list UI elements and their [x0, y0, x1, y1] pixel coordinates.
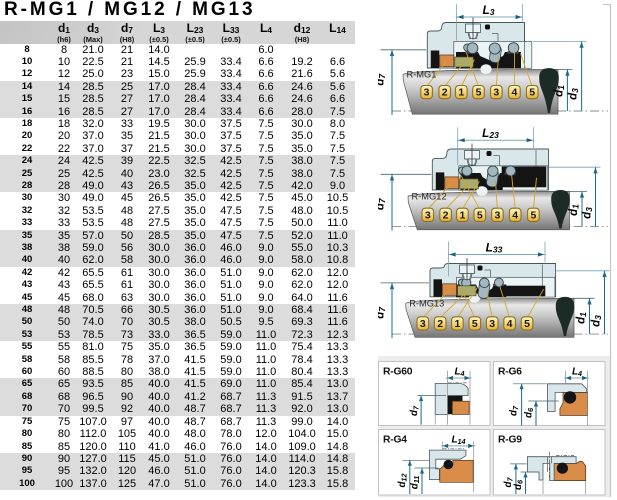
- svg-text:3: 3: [494, 209, 500, 221]
- svg-text:R-MG1: R-MG1: [407, 70, 437, 80]
- svg-text:R-G60: R-G60: [383, 367, 413, 378]
- svg-text:1: 1: [459, 209, 465, 221]
- svg-text:4: 4: [507, 318, 513, 330]
- svg-text:L33: L33: [486, 240, 503, 254]
- svg-text:d7: d7: [409, 405, 421, 416]
- svg-text:2: 2: [442, 87, 448, 99]
- svg-text:d3: d3: [581, 207, 594, 219]
- svg-text:3: 3: [420, 318, 426, 330]
- svg-text:d1: d1: [575, 312, 588, 324]
- svg-text:d1: d1: [568, 204, 581, 216]
- svg-text:R-MG12: R-MG12: [412, 192, 447, 202]
- svg-text:d1: d1: [553, 85, 566, 97]
- svg-text:L14: L14: [451, 435, 465, 446]
- svg-text:3: 3: [424, 87, 430, 99]
- svg-text:d3: d3: [568, 88, 581, 100]
- svg-text:1: 1: [454, 318, 460, 330]
- svg-text:2: 2: [437, 318, 443, 330]
- svg-text:d11: d11: [409, 476, 421, 490]
- svg-text:5: 5: [529, 87, 535, 99]
- svg-text:d7: d7: [378, 306, 387, 319]
- svg-text:5: 5: [530, 209, 536, 221]
- svg-text:5: 5: [476, 87, 482, 99]
- svg-text:4: 4: [511, 87, 517, 99]
- svg-text:5: 5: [524, 318, 530, 330]
- svg-text:d7: d7: [378, 197, 387, 210]
- svg-text:L4: L4: [454, 367, 464, 378]
- svg-text:R-MG13: R-MG13: [409, 299, 444, 309]
- svg-text:d7: d7: [378, 73, 387, 86]
- svg-text:5: 5: [472, 318, 478, 330]
- svg-text:1: 1: [458, 87, 464, 99]
- svg-text:2: 2: [443, 209, 449, 221]
- svg-text:4: 4: [512, 209, 518, 221]
- svg-text:3: 3: [425, 209, 431, 221]
- svg-text:L23: L23: [482, 126, 499, 140]
- svg-text:d7: d7: [509, 405, 521, 416]
- svg-text:L3: L3: [483, 3, 495, 17]
- svg-text:3: 3: [489, 318, 495, 330]
- svg-text:L4: L4: [572, 367, 582, 378]
- svg-text:d6: d6: [513, 479, 525, 490]
- svg-text:3: 3: [493, 87, 499, 99]
- svg-text:d12: d12: [397, 473, 409, 487]
- svg-text:R-G9: R-G9: [498, 435, 522, 446]
- svg-text:d6: d6: [523, 407, 535, 418]
- svg-text:d3: d3: [590, 315, 603, 327]
- svg-text:R-G4: R-G4: [383, 435, 407, 446]
- svg-text:5: 5: [477, 209, 483, 221]
- svg-text:R-G6: R-G6: [498, 367, 522, 378]
